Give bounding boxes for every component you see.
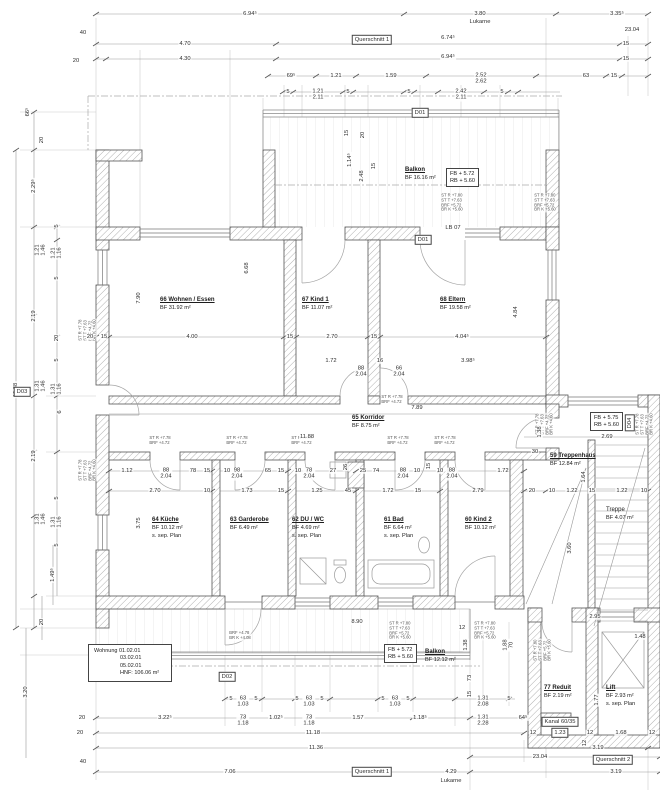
room-area: BF 6.49 m²	[230, 524, 269, 532]
dimension-label: 15	[203, 468, 211, 474]
level-box-top: FB + 5.72 RB + 5.60	[446, 168, 479, 187]
apartment-number: 03.02.01	[94, 655, 166, 662]
level-rb: RB + 5.60	[388, 654, 413, 661]
room-name: 65 Korridor	[352, 414, 384, 422]
room-name: 63 Garderobe	[230, 516, 269, 524]
dimension-label: 15	[277, 488, 285, 494]
dimension-label: 5	[285, 89, 290, 95]
room-label-duwc: 62 DU / WC BF 4.69 m² s. sep. Plan	[292, 516, 324, 540]
dimension-label: 3.80	[473, 11, 486, 17]
annotation-note: ST R +7.78BRF +4.72	[434, 436, 455, 446]
annotation-note: ST R +7.78BRF +4.72	[149, 436, 170, 446]
dimension-label: 882.04	[354, 366, 367, 379]
dimension-label: 12	[582, 739, 588, 747]
room-name: 61 Bad	[384, 516, 413, 524]
dimension-label: 631.03	[302, 696, 315, 709]
dimension-label: 1.311.46	[35, 512, 48, 525]
annotation-note: ST R +7.80ST T +7.63BRF +5.72BR K +5.60	[441, 193, 463, 212]
dimension-label: 5	[405, 696, 410, 702]
dimension-label: 10	[436, 468, 444, 474]
dimension-label: 1.312.08	[476, 696, 489, 709]
room-note: s. sep. Plan	[152, 532, 183, 540]
dimension-label: 4.00	[185, 334, 198, 340]
tag-label: D03	[14, 387, 31, 397]
dimension-label: 6.74⁵	[440, 35, 456, 41]
room-name: 67 Kind 1	[302, 296, 332, 304]
dimension-label: 10	[548, 488, 556, 494]
room-area: BF 16.16 m²	[405, 174, 436, 182]
level-fb: FB + 5.72	[388, 647, 413, 654]
room-label-korridor: 65 Korridor BF 8.75 m²	[352, 414, 384, 430]
annotation-note: ST R +7.78BRF +4.72	[226, 436, 247, 446]
room-label-bad: 61 Bad BF 6.64 m² s. sep. Plan	[384, 516, 413, 540]
level-fb: FB + 5.72	[450, 171, 475, 178]
dimension-label: 1.48	[633, 634, 646, 640]
room-area: BF 12.84 m²	[550, 460, 596, 468]
dimension-label: 8.90	[350, 619, 363, 625]
tag-label: Querschnitt 1	[352, 35, 392, 45]
dimension-label: 10	[413, 468, 421, 474]
room-label-lift: Lift BF 2.93 m² s. sep. Plan	[606, 684, 635, 708]
dimension-label: 882.04	[159, 468, 172, 481]
dimension-label: 4.29	[444, 769, 457, 775]
room-name: 77 Reduit	[544, 684, 572, 692]
dimension-label: 1.72	[381, 488, 394, 494]
dimension-label: 1.49⁵	[50, 567, 56, 583]
dimension-label: 23.04	[624, 27, 641, 33]
tag-label: D02	[219, 672, 236, 682]
room-area: BF 12.12 m²	[425, 656, 456, 664]
room-note: s. sep. Plan	[384, 532, 413, 540]
dimension-label: 15	[588, 488, 596, 494]
dimension-label: 6.94⁵	[242, 11, 258, 17]
dimension-label: 2.19	[31, 309, 37, 322]
dimension-label: 1.72	[324, 358, 337, 364]
dimension-label: 1.211.46	[35, 243, 48, 256]
dimension-label: 1.77	[594, 693, 600, 706]
dimension-label: 5	[54, 223, 60, 228]
dimension-label: 69⁵	[286, 73, 297, 79]
annotation-note: BRF +4.78BR K +4.08	[229, 631, 251, 641]
dimension-label: 11.36	[308, 745, 324, 751]
dimension-label: 78	[189, 468, 197, 474]
room-label-balkon-top: Balkon BF 16.16 m²	[405, 166, 436, 182]
dimension-label: 4.30	[178, 56, 191, 62]
dimension-label: 3.60	[567, 541, 573, 554]
dimension-label: 5	[380, 696, 385, 702]
apartment-number: 05.02.01	[94, 663, 166, 670]
level-rb: RB + 5.60	[594, 422, 619, 429]
dimension-label: 12	[529, 730, 537, 736]
dimension-label: 2.522.62	[474, 73, 487, 86]
dimension-label: 40	[79, 759, 87, 765]
dimension-label: 11.88	[299, 434, 315, 440]
dimension-label: 12	[458, 625, 466, 631]
dimension-label: 1.22	[615, 488, 628, 494]
room-label-wohnen: 66 Wohnen / Essen BF 31.92 m²	[160, 296, 215, 312]
dimension-label: 6	[57, 409, 63, 414]
dimension-label: 1.38	[463, 638, 469, 651]
tag-label: Kanal 60/35	[542, 717, 579, 727]
dimension-label: 2.48	[359, 169, 365, 182]
dimension-label: 1.212.11	[311, 89, 324, 102]
dimension-label: 10	[294, 468, 302, 474]
dimension-label: 662.04	[392, 366, 405, 379]
room-area: BF 4.69 m²	[292, 524, 324, 532]
dimension-label: 1.12	[120, 468, 133, 474]
dimension-label: 3.22⁵	[157, 715, 173, 721]
dimension-label: 5	[499, 89, 504, 95]
dimension-label: LB 07	[444, 225, 461, 231]
room-area: BF 10.12 m²	[152, 524, 183, 532]
tag-label: D04	[625, 415, 635, 432]
tag-label: Querschnitt 1	[352, 767, 392, 777]
annotation-note: ST R +7.80ST T +7.63BRF +5.72BR K +5.60	[389, 621, 411, 640]
dimension-label: 40	[79, 30, 87, 36]
dimension-label: 7.89	[410, 405, 423, 411]
dimension-label: 3.20	[23, 685, 29, 698]
dimension-label: 7.06	[223, 769, 236, 775]
dimension-label: 15	[371, 162, 377, 170]
annotation-note: ST R +7.78BRF +4.72	[387, 436, 408, 446]
dimension-label: 2.29⁵	[31, 178, 37, 194]
annotation-note: ST R +7.80ST T +7.63BRF +5.72BR K +5.60	[533, 639, 552, 661]
dimension-label: 15	[100, 334, 108, 340]
apartment-info-box: Wohnung 01.02.01 03.02.01 05.02.01 HNF: …	[88, 644, 172, 682]
annotation-note: ST R +7.78BRF +4.72	[381, 395, 402, 405]
dimension-label: 20	[528, 488, 536, 494]
dimension-label: 15	[344, 129, 350, 137]
room-name: Balkon	[405, 166, 436, 174]
dimension-label: 20	[76, 730, 84, 736]
balcony-decks	[96, 117, 558, 653]
room-name: 64 Küche	[152, 516, 183, 524]
dimension-label: Lukarne	[440, 778, 463, 784]
dimension-label: 3.75	[136, 516, 142, 529]
floor-plan: Balkon BF 16.16 m² 66 Wohnen / Essen BF …	[0, 0, 660, 800]
dimension-label: 3.19	[609, 769, 622, 775]
room-name: 68 Eltern	[440, 296, 471, 304]
room-label-kueche: 64 Küche BF 10.12 m² s. sep. Plan	[152, 516, 183, 540]
dimension-label: 12	[586, 730, 594, 736]
dimension-label: 782.04	[302, 468, 315, 481]
dimension-label: 2.95	[588, 614, 601, 620]
dimension-label: 1.73	[240, 488, 253, 494]
room-note: s. sep. Plan	[606, 700, 635, 708]
room-area: BF 19.58 m²	[440, 304, 471, 312]
tag-label: Querschnitt 2	[593, 755, 633, 765]
room-name: 62 DU / WC	[292, 516, 324, 524]
room-area: BF 4.07 m²	[606, 514, 634, 522]
dimension-label: 1.22	[565, 488, 578, 494]
dimension-label: 7.90	[136, 291, 142, 304]
dimension-label: 1.59	[384, 73, 397, 79]
room-area: BF 31.92 m²	[160, 304, 215, 312]
dimension-label: 4.04⁵	[454, 334, 470, 340]
room-area: BF 2.93 m²	[606, 692, 635, 700]
room-label-kind2: 60 Kind 2 BF 10.12 m²	[465, 516, 496, 532]
dimension-label: 3.98⁵	[460, 358, 476, 364]
dimension-label: 5	[506, 696, 511, 702]
dimension-label: 1.211.16	[51, 246, 64, 259]
dimension-label: 20	[39, 136, 45, 144]
dimension-label: 2.69	[600, 434, 613, 440]
apartment-hnf: HNF: 106.06 m²	[94, 670, 166, 677]
dimension-label: 1.21	[329, 73, 342, 79]
dimension-label: 20	[360, 131, 366, 139]
dimension-label: 15	[467, 690, 473, 698]
dimension-label: 15	[277, 468, 285, 474]
dimension-label: 66⁵	[25, 107, 31, 118]
dimension-label: 1.57	[351, 715, 364, 721]
room-area: BF 6.64 m²	[384, 524, 413, 532]
dimension-label: 5	[406, 89, 411, 95]
dimension-label: 65	[264, 468, 272, 474]
room-name: Balkon	[425, 648, 456, 656]
dimension-label: 5	[294, 696, 299, 702]
room-label-reduit: 77 Reduit BF 2.19 m²	[544, 684, 572, 700]
dimension-label: 45	[344, 488, 352, 494]
dimension-label: 6.94⁵	[440, 54, 456, 60]
dimension-label: 1.18⁵	[412, 715, 428, 721]
dimension-label: 5	[54, 542, 60, 547]
annotation-note: ST R +7.80ST T +7.63BRF +5.72BR K +5.60	[534, 193, 556, 212]
dimension-label: 15	[286, 334, 294, 340]
dimension-label: 74	[372, 468, 380, 474]
dimension-label: 20	[39, 618, 45, 626]
dimension-label: 3.35⁵	[609, 11, 625, 17]
dimension-label: 16	[376, 358, 384, 364]
dimension-label: 20	[54, 334, 60, 342]
dimension-label: 2.79	[471, 488, 484, 494]
level-box-bottom: FB + 5.72 RB + 5.60	[384, 644, 417, 663]
dimension-label: 2.422.11	[454, 89, 467, 102]
dimension-label: 26	[343, 463, 349, 471]
dimension-label: 23.04	[532, 754, 549, 760]
dimension-label: 982.04	[230, 468, 243, 481]
dimension-label: 15	[610, 73, 618, 79]
dimension-label: Lukarne	[469, 19, 492, 25]
dimension-label: 20	[72, 58, 80, 64]
dimension-label: 1.68	[614, 730, 627, 736]
level-fb: FB + 5.75	[594, 415, 619, 422]
room-note: s. sep. Plan	[292, 532, 324, 540]
dimension-label: 731.18	[302, 715, 315, 728]
dimension-label: 15	[370, 334, 378, 340]
dimension-label: 30	[531, 449, 539, 455]
dimension-label: 5	[253, 696, 258, 702]
dimension-label: 2.70	[148, 488, 161, 494]
dimension-label: 631.03	[388, 696, 401, 709]
dimension-label: 1.311.16	[51, 515, 64, 528]
dimension-label: 5	[54, 275, 60, 280]
dimension-label: 882.04	[445, 468, 458, 481]
dimension-label: 631.03	[236, 696, 249, 709]
dimension-label: 1.311.16	[51, 382, 64, 395]
room-label-balkon-bottom: Balkon BF 12.12 m²	[425, 648, 456, 664]
dimension-label: 10	[640, 488, 648, 494]
annotation-note: ST R +7.80ST T +7.63BRF +5.72BR K +5.60	[474, 621, 496, 640]
dimension-label: 64⁵	[518, 715, 529, 721]
dimension-label: 63	[582, 73, 590, 79]
dimension-label: 5	[345, 89, 350, 95]
dimension-label: 15	[426, 462, 432, 470]
dimension-label: 15	[622, 56, 630, 62]
dimension-label: 15	[414, 488, 422, 494]
annotation-note: ST R +7.78ST T +7.63BRF +4.72BR K +4.60	[78, 459, 97, 481]
room-name: 66 Wohnen / Essen	[160, 296, 215, 304]
tag-label: 1.23	[551, 728, 568, 738]
room-label-kind1: 67 Kind 1 BF 11.07 m²	[302, 296, 332, 312]
dimension-label: 4.70	[178, 41, 191, 47]
room-area: BF 11.07 m²	[302, 304, 332, 312]
room-name: 60 Kind 2	[465, 516, 496, 524]
dimension-label: 4.84	[513, 305, 519, 318]
dimension-label: 20	[78, 715, 86, 721]
dimension-label: 25	[359, 468, 367, 474]
dimension-label: 1.312.28	[476, 715, 489, 728]
dimension-label: 731.18	[236, 715, 249, 728]
room-name: Treppe	[606, 506, 634, 514]
tag-label: D01	[412, 108, 429, 118]
dimension-label: 5	[54, 357, 60, 362]
room-area: BF 2.19 m²	[544, 692, 572, 700]
room-name: Lift	[606, 684, 635, 692]
dimension-label: 2.19	[31, 449, 37, 462]
dimension-label: 1.25	[310, 488, 323, 494]
dimension-label: 3.19	[591, 745, 604, 751]
dimension-label: 882.04	[396, 468, 409, 481]
dimension-label: 1.311.46	[35, 379, 48, 392]
dimension-label: 5	[228, 696, 233, 702]
dimension-label: 15	[622, 41, 630, 47]
room-label-treppenhaus: 59 Treppenhaus BF 12.84 m²	[550, 452, 596, 468]
dimension-label: 11.18	[305, 730, 321, 736]
tag-label: D01	[415, 235, 432, 245]
dimension-label: 1.8870	[503, 638, 516, 651]
room-label-garderobe: 63 Garderobe BF 6.49 m²	[230, 516, 269, 532]
room-label-treppe: Treppe BF 4.07 m²	[606, 506, 634, 522]
room-area: BF 8.75 m²	[352, 422, 384, 430]
dimension-label: 1.72	[496, 468, 509, 474]
dimension-label: 10	[203, 488, 211, 494]
dimension-label: 6.68	[244, 261, 250, 274]
room-area: BF 10.12 m²	[465, 524, 496, 532]
dimension-label: 27	[329, 468, 337, 474]
dimension-label: 2.70	[325, 334, 338, 340]
dimension-label: 20	[86, 334, 94, 340]
dimension-label: 1.38	[537, 425, 543, 438]
dimension-label: 73	[467, 674, 473, 682]
dimension-label: 1.64	[581, 470, 587, 483]
room-name: 59 Treppenhaus	[550, 452, 596, 460]
apartment-number: Wohnung 01.02.01	[94, 648, 166, 655]
level-box-right: FB + 5.75 RB + 5.60	[590, 412, 623, 431]
annotation-note: ST R +7.78ST T +7.63BRF +4.72BR K +4.60	[635, 413, 654, 435]
dimension-label: 5	[54, 495, 60, 500]
level-rb: RB + 5.60	[450, 178, 475, 185]
dimension-label: 1.02⁵	[268, 715, 284, 721]
dimension-label: 12	[648, 730, 656, 736]
room-label-eltern: 68 Eltern BF 19.58 m²	[440, 296, 471, 312]
dimension-label: 5	[319, 696, 324, 702]
dimension-label: 1.14⁵	[347, 152, 353, 168]
